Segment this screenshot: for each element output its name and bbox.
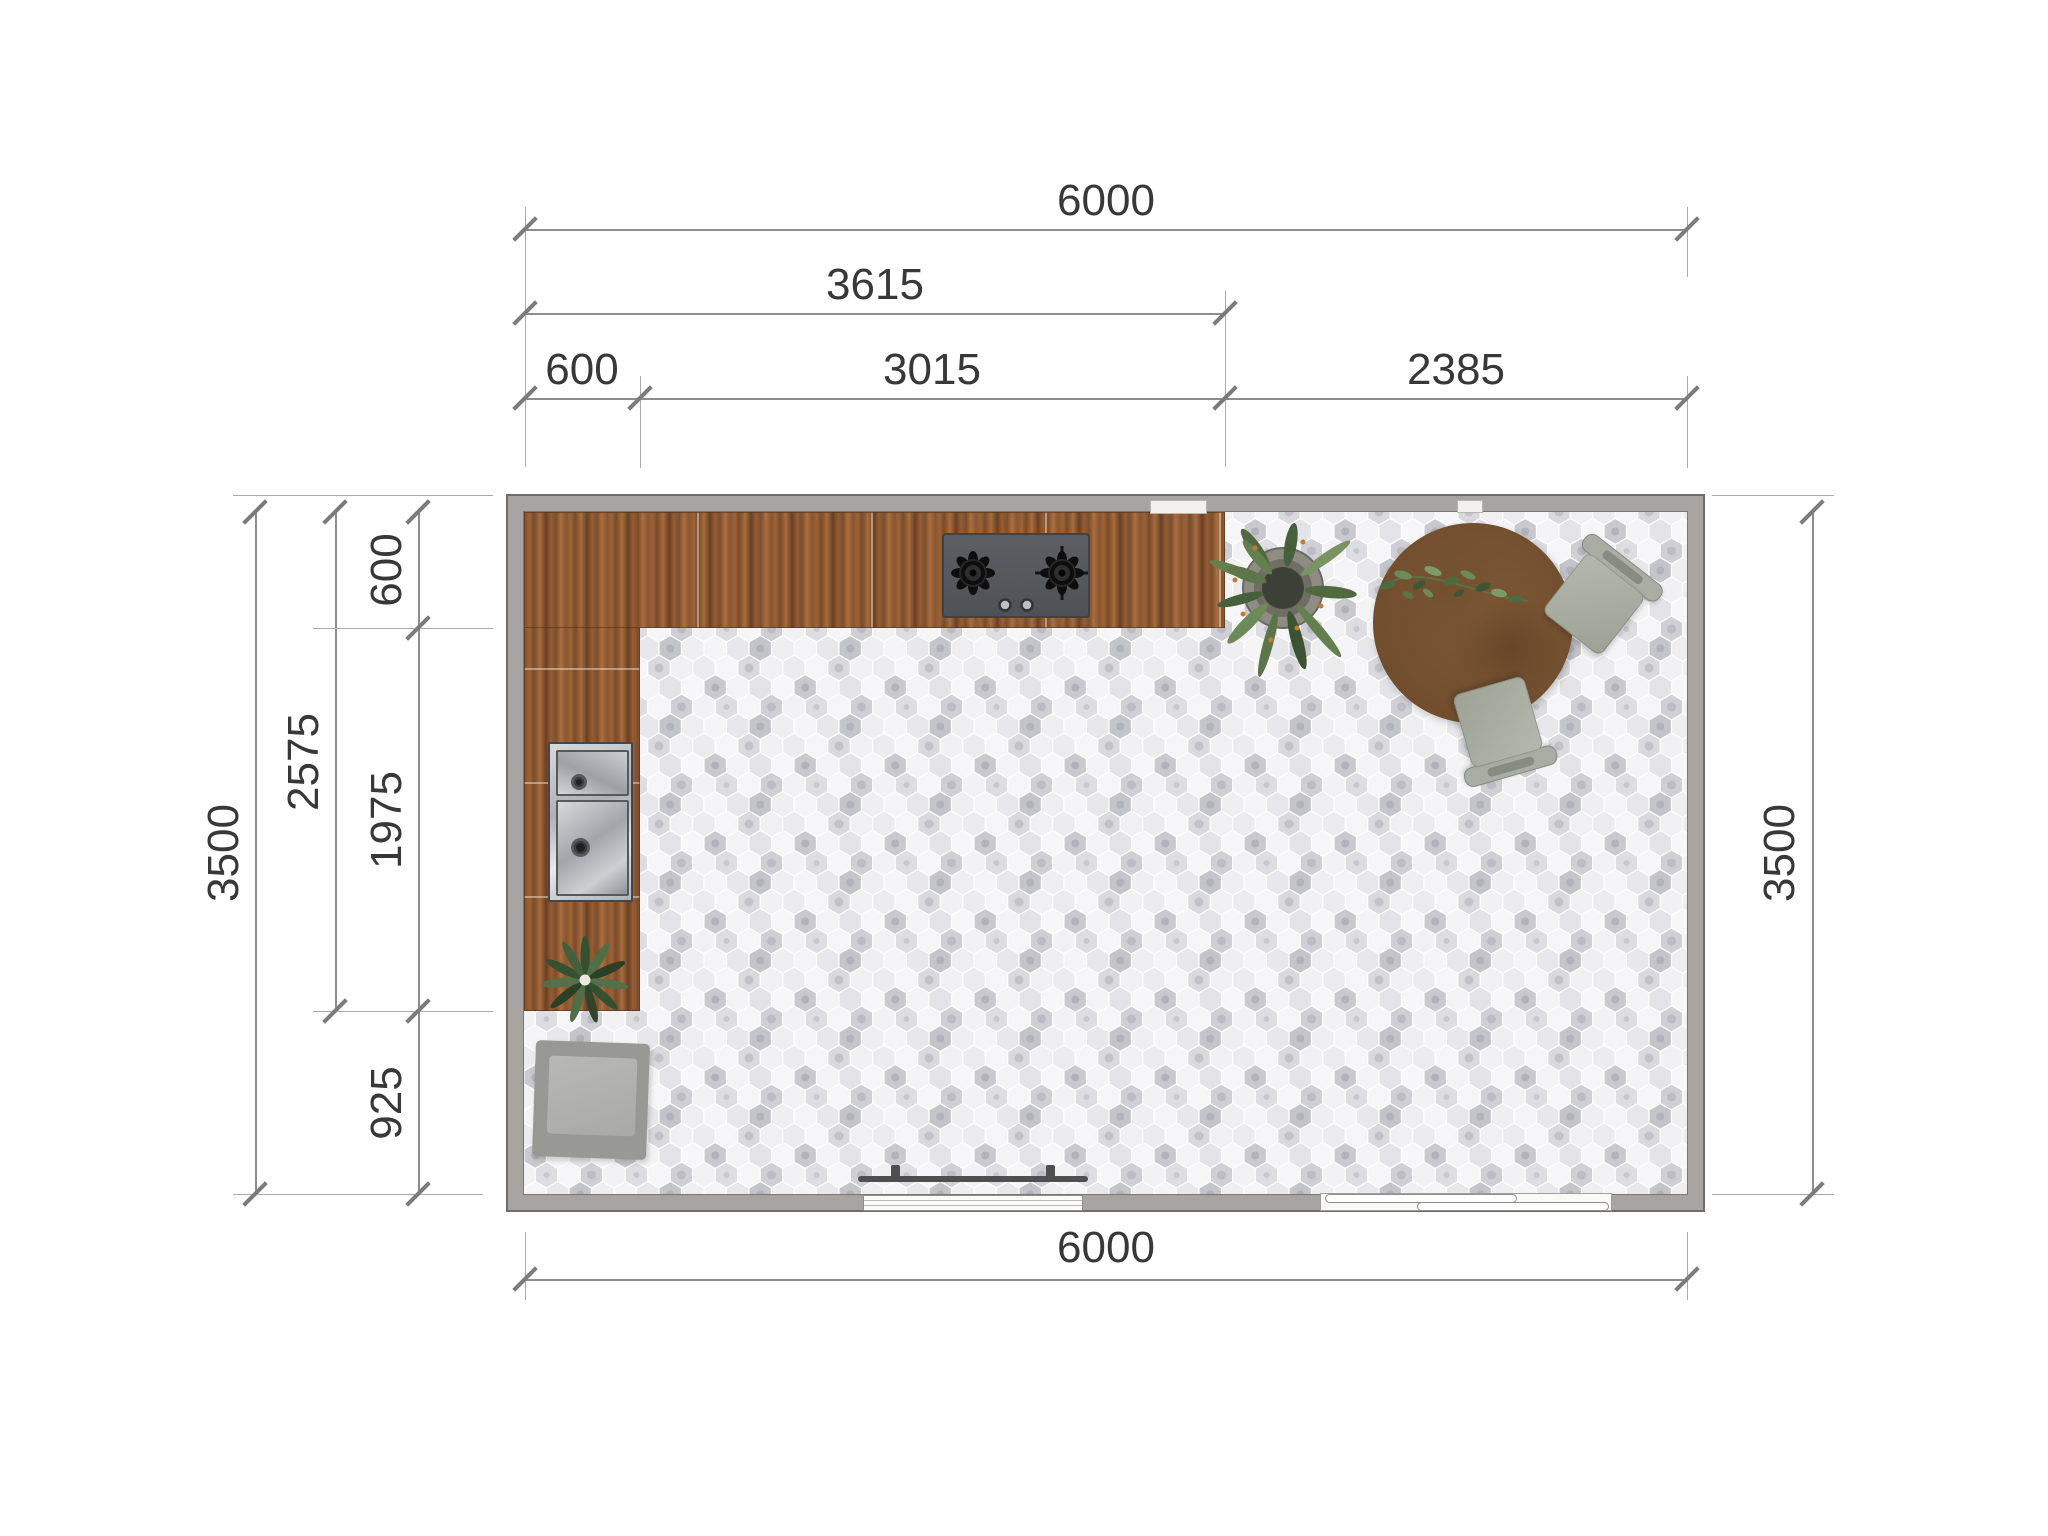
extension-line [233,495,493,496]
dim-label-top-3615: 3615 [826,263,924,307]
extension-line [1687,207,1688,277]
dim-line-top-3615 [525,313,1225,315]
burner-knob-icon [1022,600,1033,611]
dim-label-top-600: 600 [545,348,618,392]
extension-line [1687,376,1688,468]
cube-armchair[interactable] [532,1040,650,1160]
dim-line-bottom-6000 [525,1279,1687,1281]
extension-line [1687,1232,1688,1300]
dim-label-left-1975: 1975 [365,771,409,869]
burner-knob-icon [1000,600,1011,611]
sink-drain-icon [574,841,587,854]
dim-line-top-chain [525,398,1687,400]
dim-label-left-600: 600 [365,533,409,606]
extension-line [525,207,526,467]
counter-plant[interactable] [533,928,637,1032]
dim-line-top-6000 [525,229,1687,231]
extension-line [640,376,641,468]
extension-line [525,1232,526,1300]
dim-line-left-3500 [255,512,257,1194]
dim-label-left-925: 925 [365,1066,409,1139]
dim-line-right-3500 [1812,512,1814,1194]
dim-line-left-chain [418,512,420,1194]
potted-plant[interactable] [1205,516,1380,681]
dim-line-left-2575 [335,512,337,1011]
dim-label-top-2385: 2385 [1407,348,1505,392]
sliding-door-panel [1417,1202,1609,1211]
sink-drain-icon [574,777,584,787]
kitchen-sink[interactable] [548,742,633,902]
counter-top-run[interactable] [524,512,1225,628]
wall-vent [1150,500,1207,514]
rod-bracket [891,1165,900,1178]
extension-line [1712,1194,1834,1195]
sink-bowl-large [556,800,629,896]
dim-label-left-3500: 3500 [202,804,246,902]
cooktop-burners-icon [944,535,1088,616]
dim-label-top-3015: 3015 [883,348,981,392]
extension-line [233,1194,483,1195]
armchair-seat [547,1056,638,1137]
gas-cooktop[interactable] [942,533,1090,618]
sink-bowl-small [556,750,629,796]
extension-line [1225,291,1226,467]
wall-vent [1457,500,1483,513]
window-pane-line [864,1205,1082,1206]
window[interactable] [863,1195,1083,1211]
dim-label-right-3500: 3500 [1758,804,1802,902]
extension-line [313,1011,493,1012]
window-pane-line [864,1200,1082,1201]
extension-line [313,628,493,629]
floor-plan-canvas: 6000 3615 600 3015 2385 3500 2575 600 19… [0,0,2048,1536]
dim-label-bottom-6000: 6000 [1057,1226,1155,1270]
dim-label-top-6000: 6000 [1057,179,1155,223]
extension-line [1712,495,1834,496]
sliding-door[interactable] [1320,1193,1612,1211]
rod-bracket [1046,1165,1055,1178]
dim-label-left-2575: 2575 [282,713,326,811]
